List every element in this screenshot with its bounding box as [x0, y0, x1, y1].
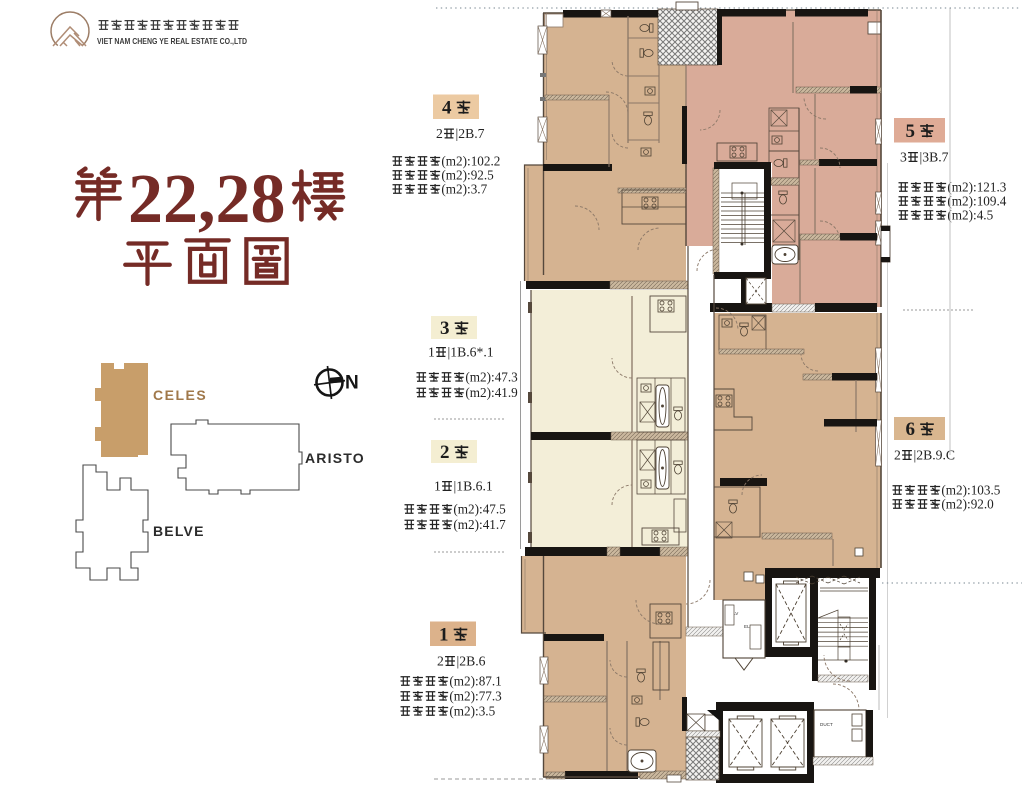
svg-text:5: 5: [906, 121, 916, 142]
svg-text:(m2):109.4: (m2):109.4: [947, 194, 1006, 209]
svg-text:1: 1: [439, 624, 449, 645]
svg-text:(m2):103.5: (m2):103.5: [941, 483, 1000, 498]
svg-text:(m2):47.5: (m2):47.5: [453, 502, 506, 517]
svg-text:(m2):3.7: (m2):3.7: [441, 182, 487, 197]
svg-text:(m2):102.2: (m2):102.2: [441, 154, 500, 169]
svg-text:1: 1: [434, 479, 441, 494]
svg-text:2: 2: [894, 448, 901, 463]
svg-text:(m2):92.5: (m2):92.5: [441, 168, 494, 183]
svg-text:(m2):92.0: (m2):92.0: [941, 497, 994, 512]
svg-text:(m2):77.3: (m2):77.3: [449, 689, 502, 704]
svg-text:4: 4: [442, 97, 452, 118]
svg-text:|3B.7: |3B.7: [920, 150, 949, 165]
svg-text:1: 1: [428, 345, 435, 360]
svg-text:2: 2: [437, 654, 444, 669]
svg-text:6: 6: [906, 419, 916, 440]
svg-text:(m2):41.7: (m2):41.7: [453, 517, 506, 532]
svg-text:BELVE: BELVE: [153, 523, 205, 539]
svg-text:|1B.6.1: |1B.6.1: [454, 479, 493, 494]
svg-text:(m2):3.5: (m2):3.5: [449, 704, 495, 719]
svg-text:|1B.6*.1: |1B.6*.1: [448, 345, 494, 360]
svg-text:22,28: 22,28: [128, 161, 286, 238]
svg-text:(m2):121.3: (m2):121.3: [947, 180, 1006, 195]
svg-text:CELES: CELES: [153, 387, 207, 403]
svg-text:|2B.6: |2B.6: [457, 654, 486, 669]
svg-text:3: 3: [900, 150, 907, 165]
svg-text:2: 2: [436, 126, 443, 141]
svg-text:|2B.7: |2B.7: [456, 126, 485, 141]
svg-text:N: N: [345, 373, 359, 394]
svg-text:(m2):41.9: (m2):41.9: [465, 385, 518, 400]
svg-text:VIET NAM CHENG YE REAL ESTATE: VIET NAM CHENG YE REAL ESTATE CO.,LTD: [97, 36, 247, 46]
svg-text:2: 2: [440, 442, 450, 463]
svg-text:DUCT: DUCT: [820, 722, 833, 727]
svg-text:(m2):4.5: (m2):4.5: [947, 208, 993, 223]
svg-text:(m2):47.3: (m2):47.3: [465, 370, 518, 385]
svg-text:3: 3: [440, 318, 450, 339]
svg-text:ARISTO: ARISTO: [305, 450, 365, 466]
svg-text:|2B.9.C: |2B.9.C: [914, 448, 956, 463]
svg-text:(m2):87.1: (m2):87.1: [449, 674, 501, 689]
